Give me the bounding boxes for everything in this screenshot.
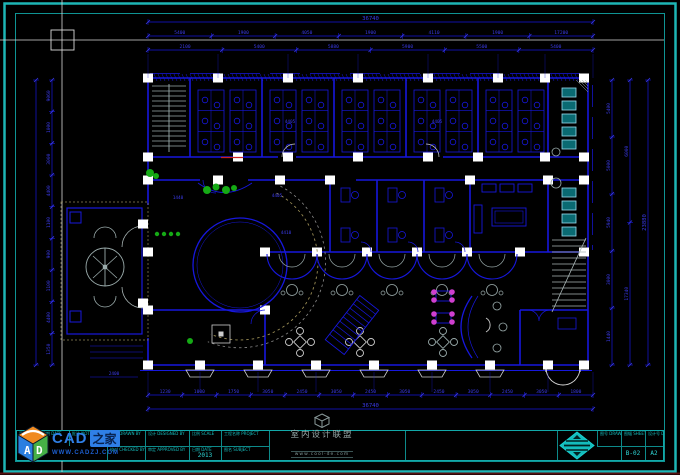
field-scale: 比例 SCALE xyxy=(189,431,221,446)
svg-text:900: 900 xyxy=(46,250,52,259)
svg-text:5400: 5400 xyxy=(254,44,265,50)
floor-plan-canvas: 3674054001900405019004110190017200210054… xyxy=(0,0,680,475)
field-subject: 图名 SUBJECT xyxy=(221,446,269,460)
svg-text:4405: 4405 xyxy=(272,193,283,199)
svg-text:1440: 1440 xyxy=(606,331,612,342)
svg-text:36740: 36740 xyxy=(362,16,379,22)
svg-text:5900: 5900 xyxy=(402,44,413,50)
svg-text:3050: 3050 xyxy=(262,389,273,395)
circular-lobby xyxy=(193,186,326,348)
mid-rooms xyxy=(341,188,465,252)
field-project: 工程名称 PROJECT xyxy=(221,431,269,446)
svg-text:1230: 1230 xyxy=(160,389,171,395)
revolving-door xyxy=(86,226,143,308)
svg-text:9060: 9060 xyxy=(46,90,52,101)
reception-bar xyxy=(461,296,507,358)
cadzj-word: CAD xyxy=(52,430,88,447)
svg-text:2400: 2400 xyxy=(109,371,120,377)
svg-text:1000: 1000 xyxy=(46,122,52,133)
svg-text:4050: 4050 xyxy=(301,30,312,36)
svg-text:1900: 1900 xyxy=(492,30,503,36)
stair-right xyxy=(552,238,586,312)
svg-text:1800: 1800 xyxy=(570,389,581,395)
svg-text:2450: 2450 xyxy=(433,389,444,395)
svg-text:3050: 3050 xyxy=(536,389,547,395)
svg-text:3000: 3000 xyxy=(46,153,52,164)
svg-text:3050: 3050 xyxy=(399,389,410,395)
exit-area xyxy=(528,310,580,385)
svg-text:3050: 3050 xyxy=(331,389,342,395)
date-value: 2013 xyxy=(189,452,221,459)
svg-text:4400: 4400 xyxy=(46,312,52,323)
svg-text:1750: 1750 xyxy=(228,389,239,395)
svg-text:5880: 5880 xyxy=(328,44,339,50)
cadzj-home-badge: 之家 xyxy=(90,430,120,447)
svg-text:23880: 23880 xyxy=(642,214,648,231)
cad-sheet: 3674054001900405019004110190017200210054… xyxy=(0,0,680,475)
svg-text:1100: 1100 xyxy=(46,217,52,228)
svg-text:6000: 6000 xyxy=(624,145,630,156)
svg-text:5400: 5400 xyxy=(174,30,185,36)
plants xyxy=(146,169,252,344)
diamond-stamp xyxy=(557,431,598,460)
svg-text:D: D xyxy=(36,444,43,457)
diamond-stamp-icon xyxy=(558,431,596,460)
svg-text:5400: 5400 xyxy=(606,103,612,114)
svg-text:3000: 3000 xyxy=(606,274,612,285)
divider xyxy=(269,431,270,460)
sheet-frame xyxy=(0,4,680,474)
entrance-porch xyxy=(61,202,148,377)
svg-text:1900: 1900 xyxy=(365,30,376,36)
cadzj-url: WWW.CADZJ.COM xyxy=(52,450,119,456)
svg-text:1100: 1100 xyxy=(46,280,52,291)
svg-text:3050: 3050 xyxy=(468,389,479,395)
cadzj-cube-icon: A D xyxy=(14,424,52,466)
field-sheet-no: 图幅 SHEET NO xyxy=(621,431,645,446)
design-number: A2 xyxy=(645,450,663,457)
svg-text:5500: 5500 xyxy=(476,44,487,50)
svg-text:4110: 4110 xyxy=(429,30,440,36)
dining-tables xyxy=(286,289,458,356)
stair-left xyxy=(152,84,186,152)
svg-text:2450: 2450 xyxy=(365,389,376,395)
svg-text:4410: 4410 xyxy=(281,230,292,236)
svg-text:5000: 5000 xyxy=(606,160,612,171)
svg-text:17200: 17200 xyxy=(554,30,568,36)
svg-text:4405: 4405 xyxy=(432,119,443,125)
svg-text:4405: 4405 xyxy=(285,119,296,125)
office-desks xyxy=(198,90,544,152)
svg-text:4400: 4400 xyxy=(46,185,52,196)
svg-text:1900: 1900 xyxy=(238,30,249,36)
svg-text:1000: 1000 xyxy=(194,389,205,395)
cadzj-logo: A D CAD 之家 WWW.CADZJ.COM xyxy=(14,424,152,470)
svg-text:2100: 2100 xyxy=(180,44,191,50)
svg-text:17340: 17340 xyxy=(624,287,630,301)
corridor xyxy=(203,144,439,193)
svg-text:1350: 1350 xyxy=(46,343,52,354)
svg-text:1440: 1440 xyxy=(173,195,184,201)
lounge xyxy=(474,184,532,233)
svg-text:36740: 36740 xyxy=(362,403,379,409)
field-design-no: 设计号 DESIGN NO xyxy=(645,431,663,446)
sheet-number: B-02 xyxy=(621,450,645,457)
svg-text:2450: 2450 xyxy=(296,389,307,395)
divider xyxy=(597,446,663,447)
svg-text:5400: 5400 xyxy=(550,44,561,50)
booth-seating xyxy=(267,254,517,296)
divider xyxy=(405,431,406,460)
field-drawing-no: 图号 DRAWING NO xyxy=(597,431,621,446)
svg-text:A: A xyxy=(24,444,31,457)
svg-text:5940: 5940 xyxy=(606,217,612,228)
svg-text:2450: 2450 xyxy=(502,389,513,395)
